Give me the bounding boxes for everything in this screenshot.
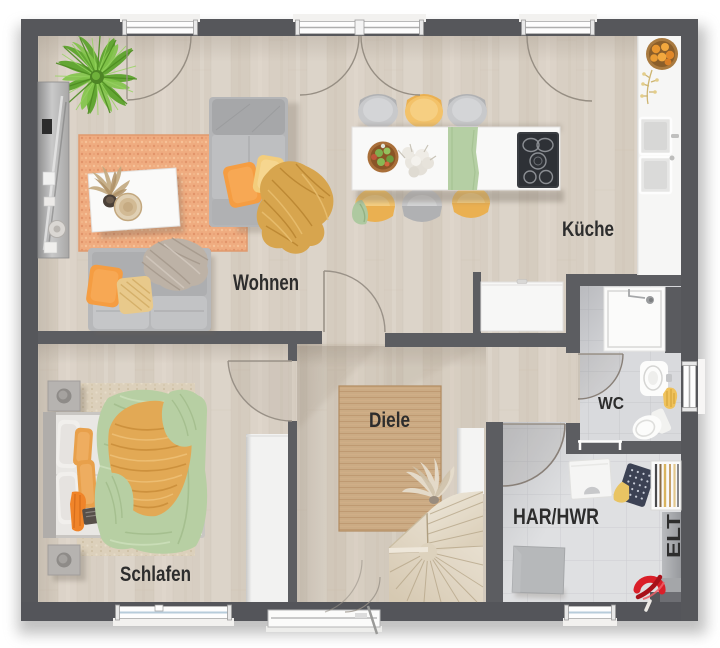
svg-text:Wohnen: Wohnen xyxy=(233,270,299,295)
svg-text:Diele: Diele xyxy=(369,409,410,432)
svg-text:Küche: Küche xyxy=(562,218,614,241)
svg-text:Schlafen: Schlafen xyxy=(120,563,191,586)
svg-text:ELT: ELT xyxy=(664,514,684,558)
svg-text:WC: WC xyxy=(598,393,624,413)
svg-text:HAR/HWR: HAR/HWR xyxy=(513,504,599,529)
